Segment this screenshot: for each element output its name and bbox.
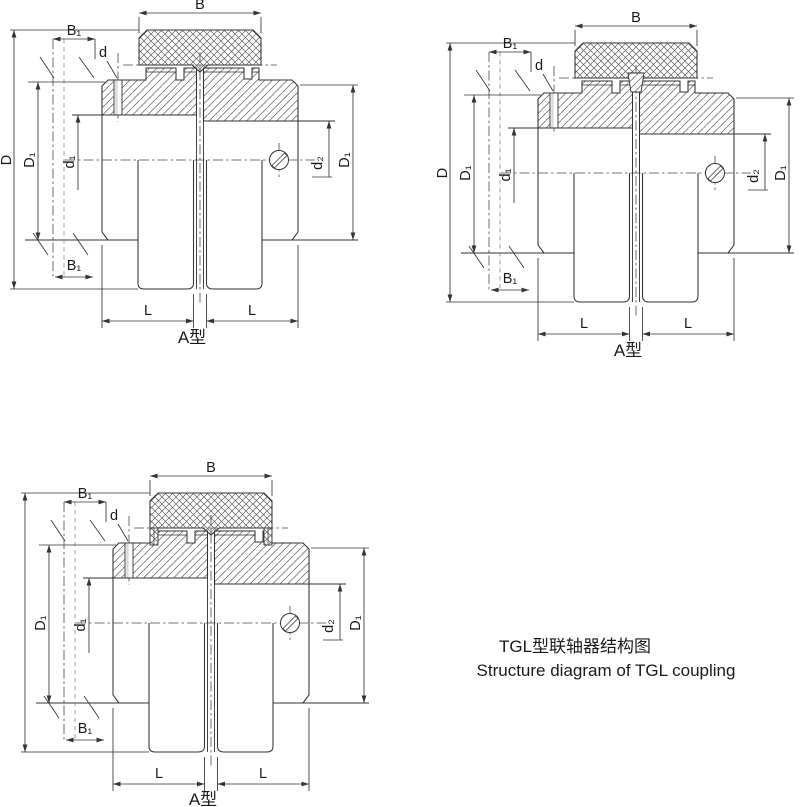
dim-label-d2: d₂ [310,156,326,170]
coupling-drawings-canvas: B B₁ d D D₁ d₁ d₂ D₁ B₁ L L A型 B B₁ d D … [0,0,800,807]
coupling-diagram-top-right: B B₁ d D D₁ d₁ d₂ D₁ B₁ L L A型 [435,10,794,360]
dim-label-L-left: L [580,316,588,332]
dim-label-L-right: L [248,303,256,319]
dim-label-L-right: L [259,766,267,782]
figure-title-chinese: TGL型联轴器结构图 [455,632,695,657]
dim-label-d: d [110,508,118,524]
figure-title-english: Structure diagram of TGL coupling [446,661,766,681]
dim-label-L-left: L [144,303,152,319]
dim-label-D1-right: D₁ [773,165,789,180]
dim-label-D1-right: D₁ [348,615,364,630]
dim-label-D: D [0,155,15,165]
tgl-coupling-figure: B B₁ d D D₁ d₁ d₂ D₁ B₁ L L A型 B B₁ d D … [0,0,800,807]
dim-label-d2: d₂ [746,169,762,183]
diagram-caption: A型 [189,790,217,807]
dim-label-b1-bottom: B₁ [67,258,82,274]
dim-label-D1-right: D₁ [337,152,353,167]
dim-label-d: d [535,58,543,74]
dim-label-L-right: L [684,316,692,332]
dim-label-b1-bottom: B₁ [78,721,93,737]
dim-label-b: B [631,10,641,26]
dim-label-b: B [195,0,205,13]
diagram-caption: A型 [178,328,206,347]
dim-label-d1: d₁ [62,155,78,168]
coupling-diagram-top-left: B B₁ d D D₁ d₁ d₂ D₁ B₁ L L A型 [0,0,358,347]
dim-label-D1-left: D₁ [458,165,474,180]
dim-label-D: D [435,168,451,178]
dim-label-b1-top: B₁ [78,486,93,502]
dim-label-D1-left: D₁ [22,152,38,167]
dim-label-D1-left: D₁ [33,615,49,630]
dim-label-b: B [206,460,216,476]
coupling-diagram-bottom-left: B B₁ d D₁ d₁ d₂ D₁ B₁ L L A型 [21,460,369,807]
diagram-caption: A型 [614,341,642,360]
dim-label-d1: d₁ [498,168,514,181]
dim-label-d1: d₁ [73,618,89,631]
dim-label-b1-top: B₁ [67,23,82,39]
dim-label-L-left: L [155,766,163,782]
dim-label-b1-bottom: B₁ [503,271,518,287]
dim-label-b1-top: B₁ [503,36,518,52]
dim-label-d2: d₂ [321,619,337,633]
dim-label-d: d [99,45,107,61]
